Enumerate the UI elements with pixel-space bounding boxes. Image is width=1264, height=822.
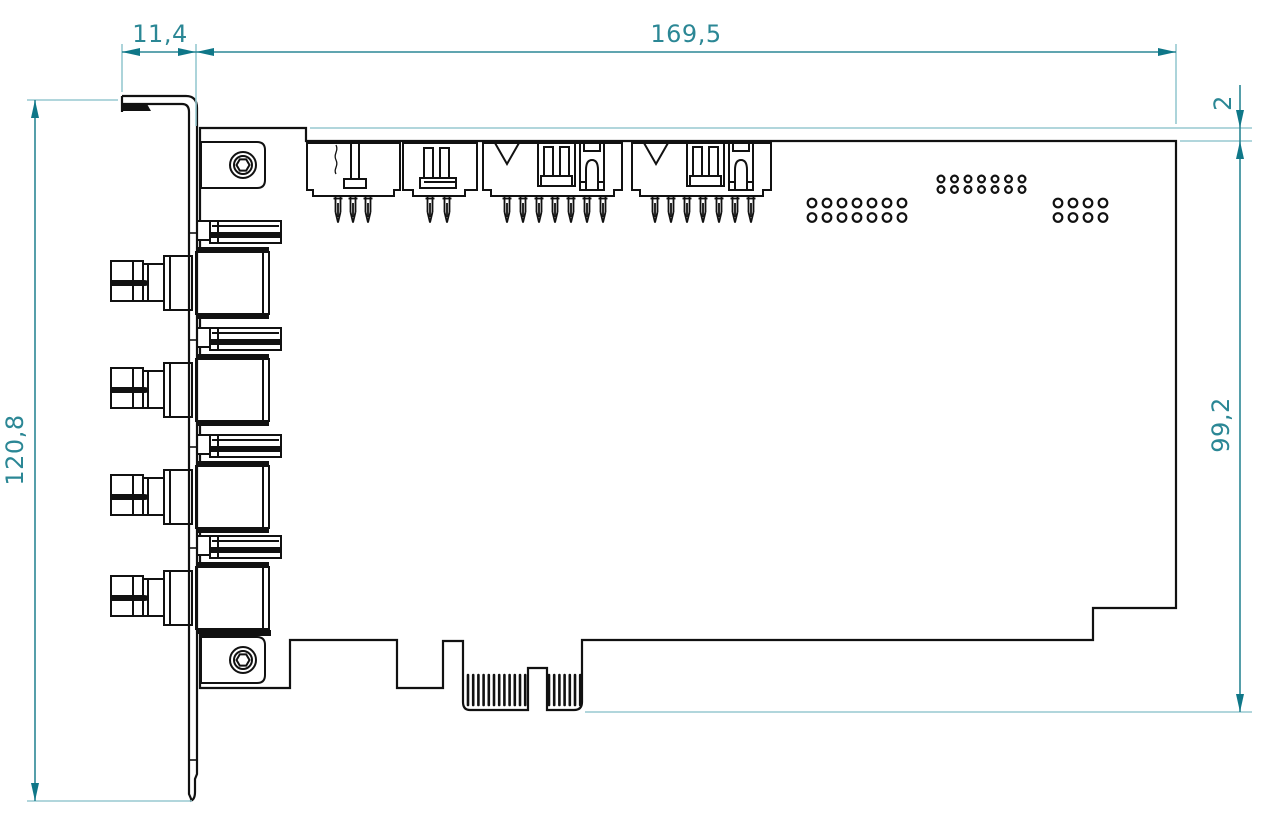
mounting-plate-top [201,142,265,188]
shield-band-bottom [201,630,271,636]
top-connector-2 [403,141,477,196]
gold-fingers [468,675,580,705]
mounting-plate-bottom [201,637,265,683]
dim-label-board-height: 99,2 [1207,397,1235,452]
technical-drawing: 11,4 169,5 2 99,2 120,8 [0,0,1264,822]
dim-label-bracket-lip-width: 11,4 [132,20,187,48]
dim-label-board-length: 169,5 [650,20,721,48]
finger-group-2 [549,675,580,705]
dim-label-bracket-height: 120,8 [1,414,29,485]
top-connector-4 [632,141,771,196]
drawing-page: 11,4 169,5 2 99,2 120,8 [0,0,1264,822]
dim-label-top-edge-offset: 2 [1209,95,1237,111]
top-connector-3 [483,141,622,196]
top-connector-1 [307,141,400,196]
